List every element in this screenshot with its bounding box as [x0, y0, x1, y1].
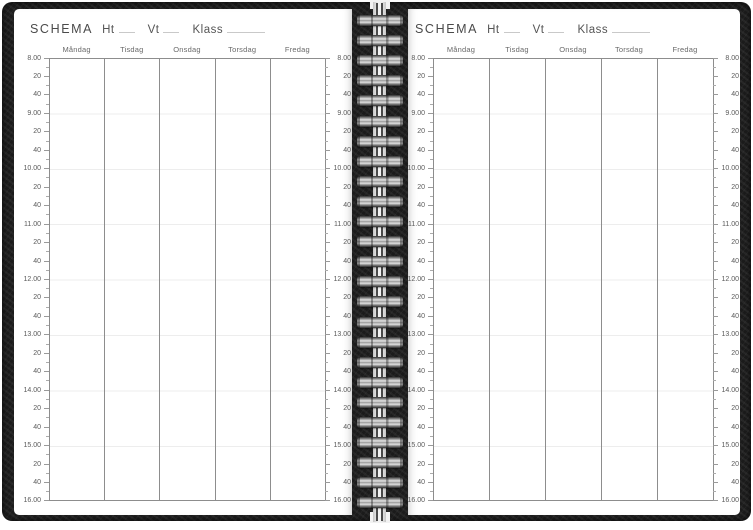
- vt-label: Vt: [148, 24, 160, 36]
- day-column: [159, 59, 214, 500]
- time-label: 20: [22, 72, 49, 81]
- time-label: 40: [406, 90, 433, 99]
- time-label: 40: [713, 423, 740, 432]
- time-label: 40: [406, 423, 433, 432]
- klass-fill-in-line: [227, 22, 265, 33]
- binding-ring: [357, 55, 403, 66]
- time-label: 11.00: [713, 220, 740, 229]
- day-column: [104, 59, 159, 500]
- day-label: Fredag: [657, 45, 713, 59]
- time-label: 20: [22, 183, 49, 192]
- time-label: 40: [22, 90, 49, 99]
- time-label: 8.00: [22, 54, 49, 63]
- time-label: 40: [325, 312, 352, 321]
- time-label: 20: [22, 349, 49, 358]
- day-label: Tisdag: [104, 45, 159, 59]
- day-label: Måndag: [49, 45, 104, 59]
- schema-title: SCHEMA: [30, 22, 93, 36]
- time-label: 8.00: [713, 54, 740, 63]
- time-label: 20: [22, 238, 49, 247]
- klass-label: Klass: [577, 24, 608, 36]
- time-label: 20: [406, 349, 433, 358]
- time-label: 40: [713, 201, 740, 210]
- binding-ring: [357, 296, 403, 307]
- time-label: 40: [325, 146, 352, 155]
- time-rail-right: 8.0020409.00204010.00204011.00204012.002…: [325, 58, 352, 501]
- time-label: 40: [713, 257, 740, 266]
- day-column: [270, 59, 325, 500]
- time-label: 11.00: [22, 220, 49, 229]
- time-label: 40: [406, 312, 433, 321]
- time-label: 40: [406, 257, 433, 266]
- binding-ring: [357, 437, 403, 448]
- binding-ring: [357, 35, 403, 46]
- time-label: 16.00: [713, 496, 740, 505]
- klass-fill-in-line: [612, 22, 650, 33]
- time-label: 14.00: [325, 386, 352, 395]
- time-label: 20: [325, 183, 352, 192]
- time-label: 13.00: [325, 330, 352, 339]
- binding-ring: [357, 196, 403, 207]
- binding-ring: [357, 337, 403, 348]
- time-label: 20: [406, 127, 433, 136]
- time-label: 40: [713, 367, 740, 376]
- time-label: 20: [406, 404, 433, 413]
- binding-ring: [357, 357, 403, 368]
- time-label: 40: [713, 312, 740, 321]
- time-label: 16.00: [325, 496, 352, 505]
- time-label: 20: [325, 460, 352, 469]
- time-rail-left: 8.0020409.00204010.00204011.00204012.002…: [22, 58, 49, 501]
- day-label: Fredag: [270, 45, 325, 59]
- time-label: 16.00: [22, 496, 49, 505]
- binding-ring: [357, 15, 403, 26]
- time-label: 40: [22, 478, 49, 487]
- day-column: [545, 59, 601, 500]
- vt-fill-in-line: [548, 22, 564, 33]
- time-label: 8.00: [406, 54, 433, 63]
- time-label: 40: [713, 478, 740, 487]
- time-label: 12.00: [22, 275, 49, 284]
- time-label: 40: [22, 423, 49, 432]
- wire-binding: [350, 0, 410, 530]
- time-label: 40: [325, 201, 352, 210]
- day-label: Måndag: [433, 45, 489, 59]
- time-label: 12.00: [406, 275, 433, 284]
- time-label: 20: [22, 127, 49, 136]
- time-label: 10.00: [406, 164, 433, 173]
- time-label: 13.00: [22, 330, 49, 339]
- binding-ring: [357, 216, 403, 227]
- time-label: 8.00: [325, 54, 352, 63]
- time-label: 40: [713, 146, 740, 155]
- time-label: 20: [713, 183, 740, 192]
- binding-ring: [357, 95, 403, 106]
- ht-label: Ht: [102, 24, 115, 36]
- binding-ring: [357, 377, 403, 388]
- day-column: [50, 59, 104, 500]
- ht-label: Ht: [487, 24, 500, 36]
- time-label: 9.00: [22, 109, 49, 118]
- time-label: 20: [325, 349, 352, 358]
- day-column: [434, 59, 489, 500]
- time-label: 40: [325, 367, 352, 376]
- schema-title: SCHEMA: [415, 22, 478, 36]
- day-column: [657, 59, 713, 500]
- time-label: 40: [325, 90, 352, 99]
- time-label: 14.00: [713, 386, 740, 395]
- ht-fill-in-line: [119, 22, 135, 33]
- time-label: 40: [406, 478, 433, 487]
- time-label: 20: [325, 127, 352, 136]
- binding-ring: [357, 156, 403, 167]
- binding-ring: [357, 397, 403, 408]
- day-column: [215, 59, 270, 500]
- time-label: 40: [22, 257, 49, 266]
- day-label: Onsdag: [159, 45, 214, 59]
- time-label: 20: [713, 238, 740, 247]
- time-label: 20: [22, 404, 49, 413]
- day-label: Torsdag: [215, 45, 270, 59]
- ht-fill-in-line: [504, 22, 520, 33]
- time-label: 20: [713, 404, 740, 413]
- time-label: 40: [325, 423, 352, 432]
- time-label: 20: [406, 238, 433, 247]
- time-label: 15.00: [406, 441, 433, 450]
- vt-fill-in-line: [163, 22, 179, 33]
- klass-label: Klass: [192, 24, 223, 36]
- time-label: 9.00: [713, 109, 740, 118]
- time-label: 20: [325, 293, 352, 302]
- time-label: 20: [406, 72, 433, 81]
- time-label: 15.00: [22, 441, 49, 450]
- time-label: 20: [325, 72, 352, 81]
- time-label: 40: [22, 201, 49, 210]
- vt-label: Vt: [533, 24, 545, 36]
- time-label: 20: [22, 460, 49, 469]
- binding-ring: [357, 457, 403, 468]
- page-header: SCHEMA Ht Vt Klass: [30, 22, 265, 38]
- right-page: SCHEMA Ht Vt Klass MåndagTisdagOnsdagTor…: [408, 9, 740, 515]
- time-label: 14.00: [406, 386, 433, 395]
- time-label: 10.00: [22, 164, 49, 173]
- time-label: 20: [713, 127, 740, 136]
- time-rail-left: 8.0020409.00204010.00204011.00204012.002…: [406, 58, 433, 501]
- time-label: 16.00: [406, 496, 433, 505]
- binding-ring: [357, 497, 403, 508]
- time-label: 12.00: [325, 275, 352, 284]
- time-label: 20: [713, 293, 740, 302]
- binding-ring: [357, 417, 403, 428]
- page-header: SCHEMA Ht Vt Klass: [415, 22, 650, 38]
- time-label: 9.00: [325, 109, 352, 118]
- time-label: 40: [325, 257, 352, 266]
- time-label: 15.00: [325, 441, 352, 450]
- time-label: 20: [713, 460, 740, 469]
- binding-ring: [357, 136, 403, 147]
- time-rail-right: 8.0020409.00204010.00204011.00204012.002…: [713, 58, 740, 501]
- day-label: Tisdag: [489, 45, 545, 59]
- day-column: [601, 59, 657, 500]
- day-label: Onsdag: [545, 45, 601, 59]
- planner-spread-photo: SCHEMA Ht Vt Klass MåndagTisdagOnsdagTor…: [0, 0, 753, 530]
- day-header-row: MåndagTisdagOnsdagTorsdagFredag: [433, 45, 713, 59]
- time-label: 14.00: [22, 386, 49, 395]
- time-label: 40: [406, 201, 433, 210]
- time-label: 15.00: [713, 441, 740, 450]
- time-label: 20: [713, 72, 740, 81]
- time-label: 20: [22, 293, 49, 302]
- time-label: 11.00: [325, 220, 352, 229]
- time-label: 20: [713, 349, 740, 358]
- day-header-row: MåndagTisdagOnsdagTorsdagFredag: [49, 45, 325, 59]
- binding-ring: [357, 236, 403, 247]
- left-page: SCHEMA Ht Vt Klass MåndagTisdagOnsdagTor…: [14, 9, 352, 515]
- time-label: 20: [325, 404, 352, 413]
- binding-ring: [357, 317, 403, 328]
- time-label: 10.00: [713, 164, 740, 173]
- time-label: 12.00: [713, 275, 740, 284]
- time-label: 20: [406, 183, 433, 192]
- time-label: 40: [406, 146, 433, 155]
- schedule-grid: [49, 58, 326, 501]
- time-label: 11.00: [406, 220, 433, 229]
- time-label: 40: [325, 478, 352, 487]
- time-label: 13.00: [713, 330, 740, 339]
- time-label: 40: [22, 146, 49, 155]
- binding-ring: [357, 75, 403, 86]
- binding-ring: [357, 276, 403, 287]
- day-label: Torsdag: [601, 45, 657, 59]
- time-label: 40: [22, 312, 49, 321]
- binding-ring: [357, 116, 403, 127]
- time-label: 9.00: [406, 109, 433, 118]
- schedule-grid: [433, 58, 714, 501]
- time-label: 10.00: [325, 164, 352, 173]
- day-column: [489, 59, 545, 500]
- time-label: 20: [406, 293, 433, 302]
- binding-ring: [357, 477, 403, 488]
- time-label: 40: [406, 367, 433, 376]
- time-label: 20: [406, 460, 433, 469]
- time-label: 40: [713, 90, 740, 99]
- time-label: 40: [22, 367, 49, 376]
- binding-ring: [357, 256, 403, 267]
- time-label: 20: [325, 238, 352, 247]
- binding-ring: [357, 176, 403, 187]
- time-label: 13.00: [406, 330, 433, 339]
